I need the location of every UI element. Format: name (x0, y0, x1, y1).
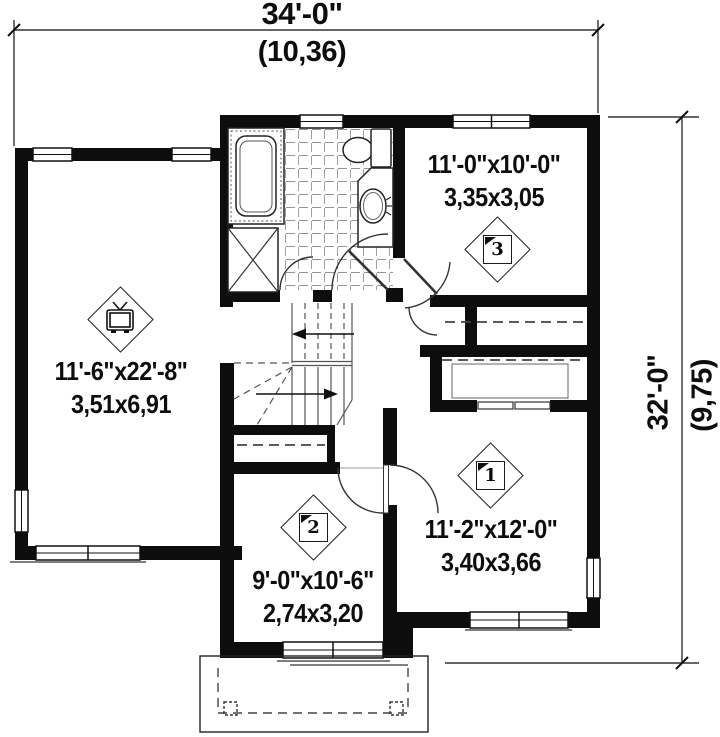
bedroom1-marker-number: 1 (476, 461, 505, 490)
closet-a-door-arc (409, 307, 437, 335)
bedroom2-marker-number: 2 (299, 513, 328, 542)
bedroom3-marker-number: 3 (483, 235, 512, 264)
tv-icon (100, 299, 140, 339)
bedroom2-label: 9'-0"x10'-6" 2,74x3,20 (223, 564, 403, 630)
bedroom2-size-imperial: 9'-0"x10'-6" (223, 564, 403, 597)
staircase (234, 303, 354, 425)
bedroom1-door-arc (390, 465, 438, 513)
bedroom2-size-metric: 2,74x3,20 (223, 597, 403, 630)
bedroom3-label: 11'-0"x10'-0" 3,35x3,05 (404, 148, 584, 214)
family-room-bottom-window (36, 546, 140, 560)
stair-arrow-up (292, 329, 354, 340)
stair-arrow-down (256, 389, 338, 400)
bedroom3-size-metric: 3,35x3,05 (404, 181, 584, 214)
bedroom3-door-leaf (404, 259, 437, 294)
bathroom-window (300, 115, 343, 128)
porch (200, 656, 428, 732)
closet-b-bifold-right (515, 402, 550, 409)
family-room-top-window-1 (33, 148, 72, 161)
dimension-width-metric: (10,36) (202, 36, 402, 69)
bedroom3-marker: 3 (464, 216, 530, 282)
bedroom1-bottom-window (470, 612, 568, 628)
family-room-top-window-2 (172, 148, 211, 161)
bedroom1-marker: 1 (457, 442, 523, 508)
bathtub (228, 128, 284, 224)
bedroom1-door-leaf (384, 465, 389, 513)
closet-b-shelf (452, 364, 568, 398)
bedroom1-label: 11'-2"x12'-0" 3,40x3,66 (401, 513, 581, 579)
bedroom1-size-imperial: 11'-2"x12'-0" (401, 513, 581, 546)
dimension-depth-metric: (9,75) (687, 316, 720, 476)
bedroom1-size-metric: 3,40x3,66 (401, 546, 581, 579)
floorplan-page: 34'-0" (10,36) 32'-0" (9,75) 11'-6"x22'-… (0, 0, 720, 737)
family-room-size-metric: 3,51x6,91 (31, 388, 211, 421)
bedroom3-window (453, 115, 530, 128)
bedroom3-size-imperial: 11'-0"x10'-0" (404, 148, 584, 181)
bedroom1-right-window (587, 558, 600, 598)
family-room-size-imperial: 11'-6"x22'-8" (31, 355, 211, 388)
linen-closet (228, 228, 278, 292)
dimension-depth-imperial: 32'-0" (643, 313, 676, 473)
family-room-left-window (15, 490, 28, 532)
closet-b-bifold-left (478, 402, 513, 409)
family-room-label: 11'-6"x22'-8" 3,51x6,91 (31, 355, 211, 421)
family-room-marker (87, 286, 153, 352)
dimension-width-imperial: 34'-0" (202, 0, 402, 32)
bedroom2-marker: 2 (280, 494, 346, 560)
